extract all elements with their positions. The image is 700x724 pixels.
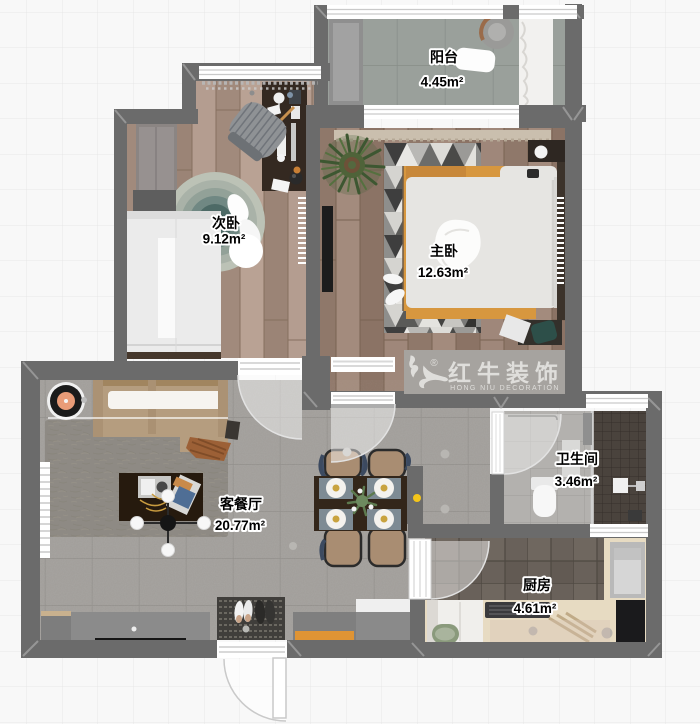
svg-text:3.46m²: 3.46m²: [555, 474, 598, 489]
svg-text:主卧: 主卧: [430, 243, 458, 259]
svg-text:4.61m²: 4.61m²: [514, 601, 557, 616]
svg-text:卫生间: 卫生间: [556, 451, 598, 467]
svg-text:20.77m²: 20.77m²: [215, 518, 266, 533]
svg-text:次卧: 次卧: [212, 215, 240, 231]
svg-text:®: ®: [430, 358, 438, 369]
svg-text:9.12m²: 9.12m²: [203, 232, 246, 247]
svg-text:12.63m²: 12.63m²: [418, 265, 469, 280]
svg-text:阳台: 阳台: [430, 49, 458, 65]
svg-text:HONG NIU DECORATION: HONG NIU DECORATION: [450, 385, 560, 392]
svg-text:4.45m²: 4.45m²: [421, 75, 464, 90]
svg-text:厨房: 厨房: [523, 577, 551, 593]
svg-text:客餐厅: 客餐厅: [219, 496, 262, 512]
svg-text:红牛装饰: 红牛装饰: [448, 360, 564, 386]
